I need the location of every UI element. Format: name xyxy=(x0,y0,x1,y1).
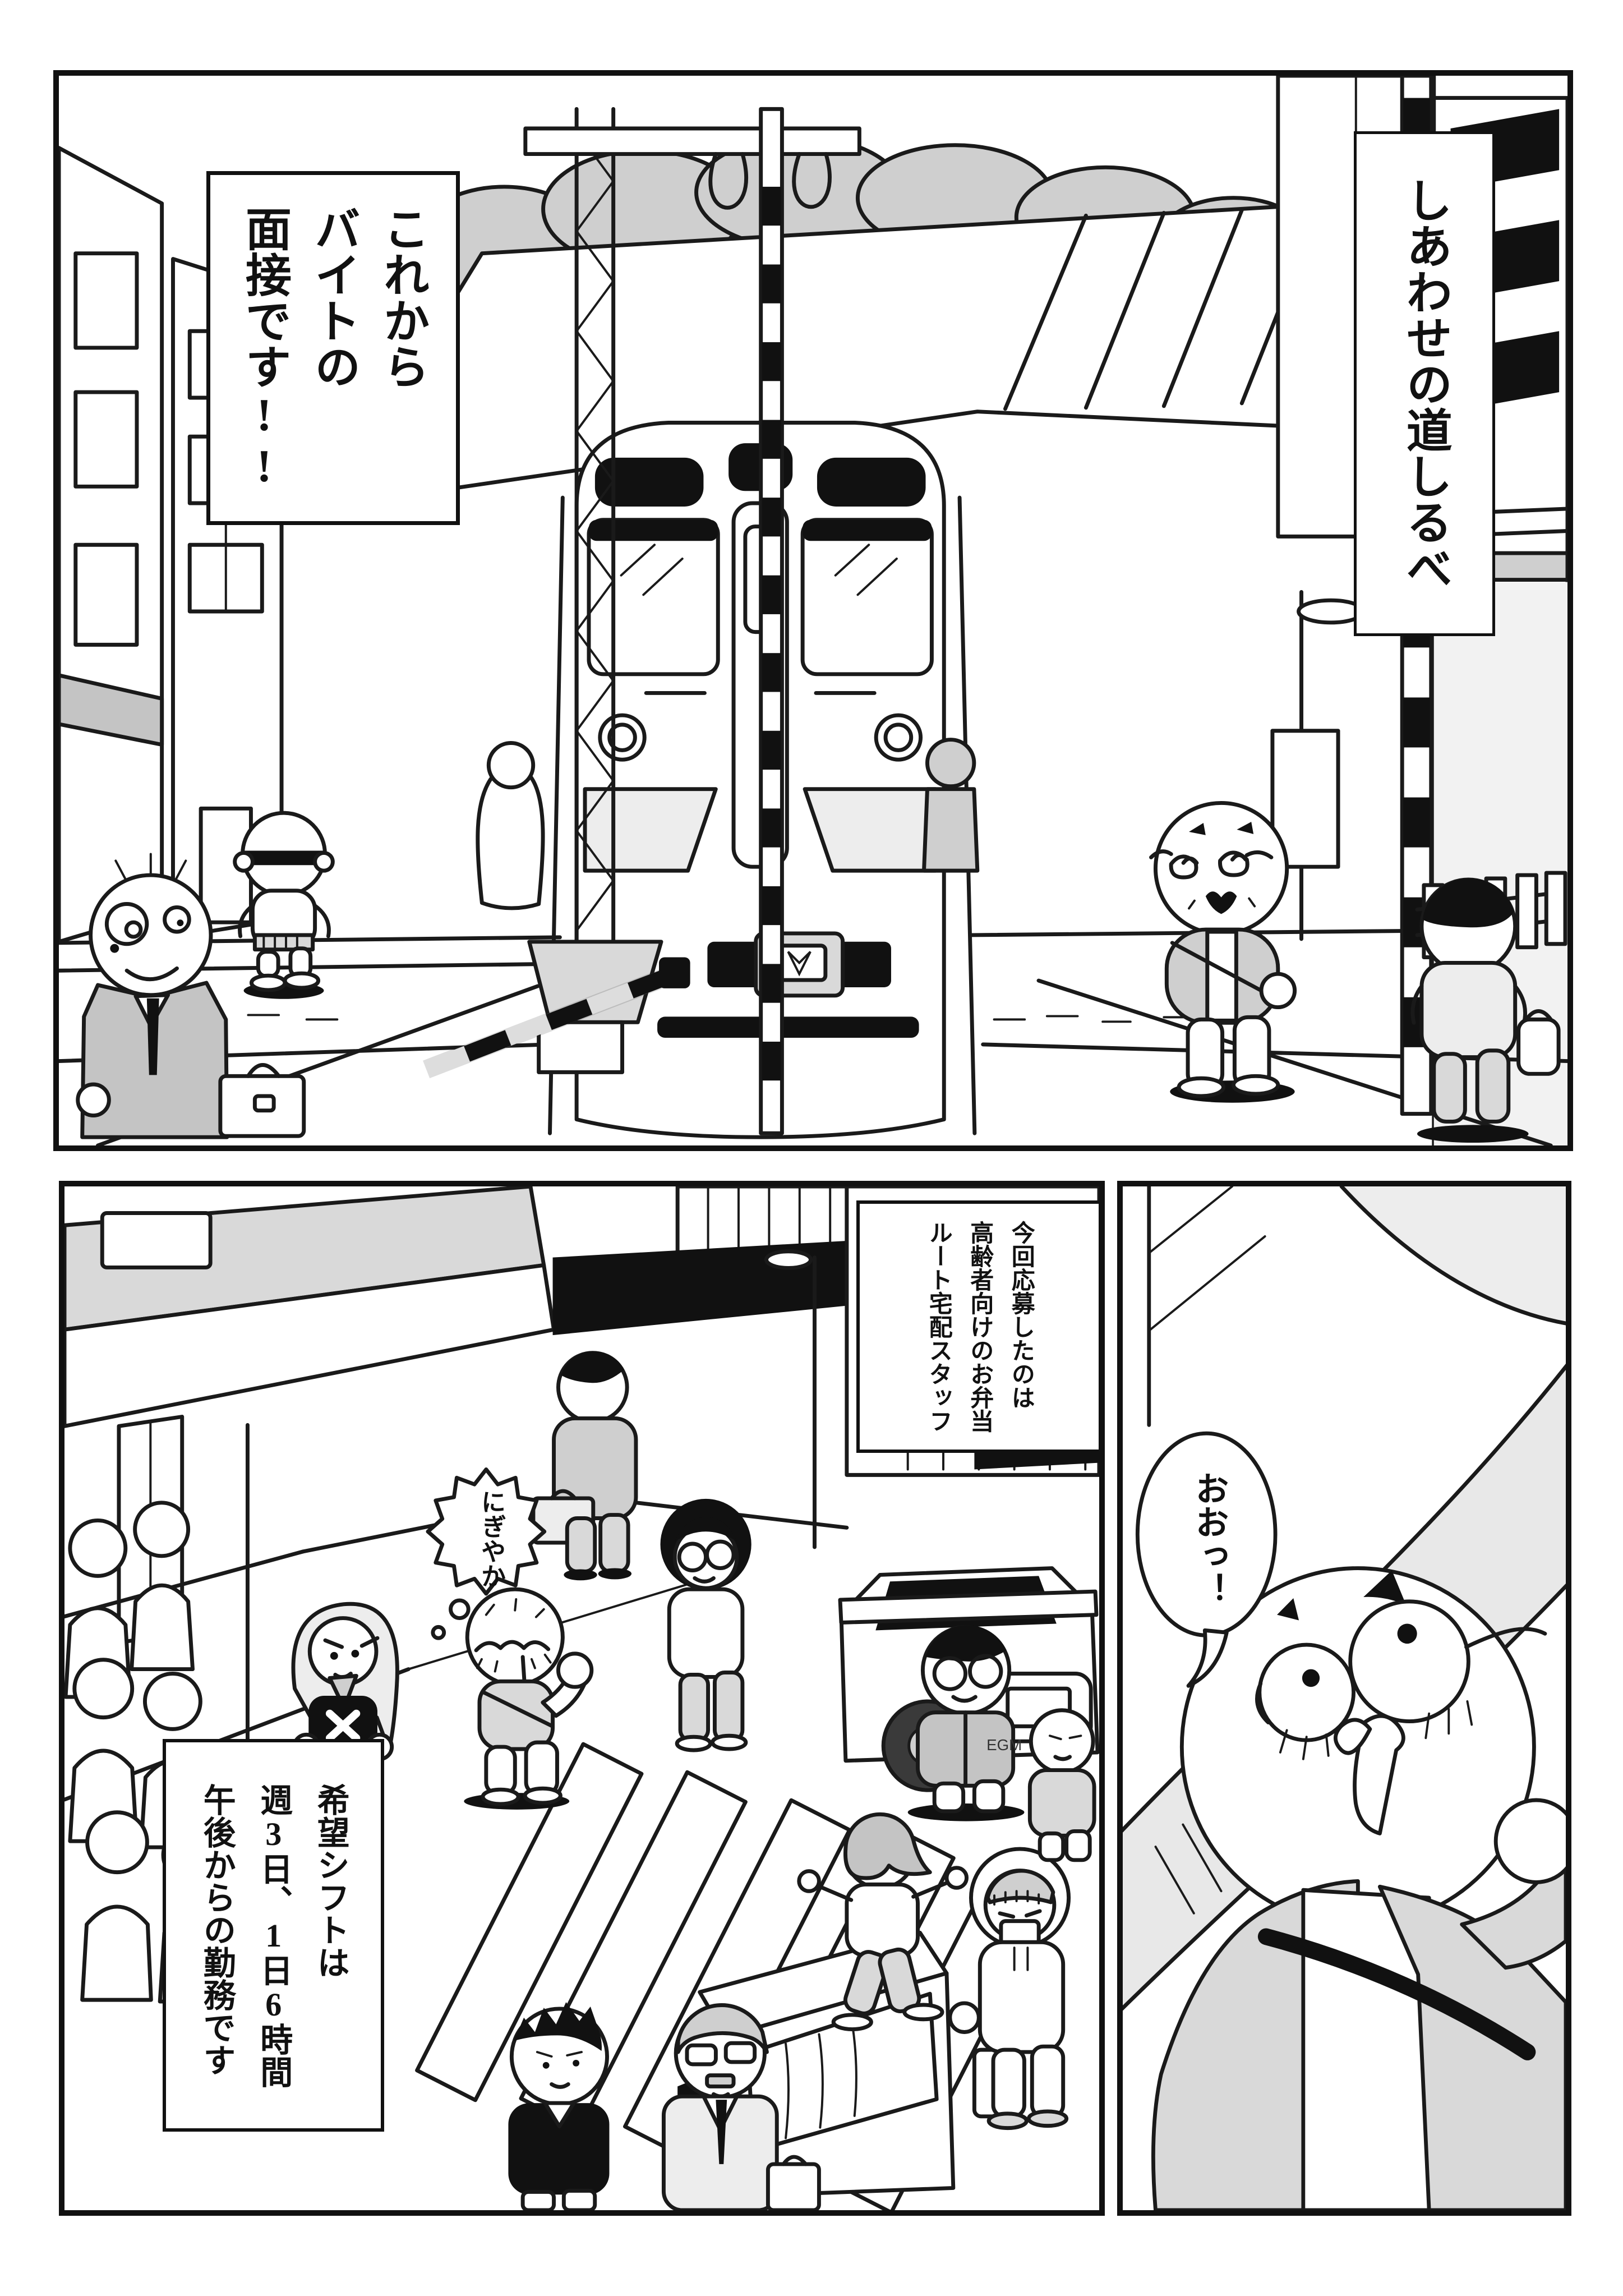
pedestrian-silhouette-white xyxy=(478,743,543,908)
speech-text: おおっ！ xyxy=(1192,1471,1226,1606)
jacket-text: EGM xyxy=(986,1736,1022,1754)
thought-text: にぎやか xyxy=(478,1489,503,1588)
salaryman-back xyxy=(533,1351,636,1581)
caption-job-description-text: 今回応募したのは 高齢者向けのお弁当 ルート宅配スタッフ xyxy=(917,1221,1041,1433)
boy-with-cap xyxy=(235,813,333,999)
speech-bubble-text: おおっ！ xyxy=(1171,1449,1247,1628)
caption-job-description: 今回応募したのは 高齢者向けのお弁当 ルート宅配スタッフ xyxy=(856,1200,1102,1453)
title-text: しあわせの道しるべ xyxy=(1397,177,1452,591)
caption-shift-info-text: 希望シフトは 週3日、1日6時間 午後からの勤務です xyxy=(188,1783,359,2088)
platform-silhouette xyxy=(924,740,978,871)
closeup-scene-art xyxy=(1123,1186,1566,2210)
title-signboard: しあわせの道しるべ xyxy=(1354,131,1495,636)
young-man-sweater xyxy=(508,2002,609,2210)
panel-busy-street: EGM xyxy=(59,1181,1105,2216)
manga-page: これから バイトの 面接です!! しあわせの道しるべ xyxy=(0,0,1623,2296)
caption-shift-info: 希望シフトは 週3日、1日6時間 午後からの勤務です xyxy=(163,1739,384,2132)
narration-balloon-text: これから バイトの 面接です!! xyxy=(230,205,437,491)
panel-railroad-crossing: これから バイトの 面接です!! しあわせの道しるべ xyxy=(53,70,1573,1151)
panel-closeup-elderly-man: おおっ！ xyxy=(1117,1181,1571,2216)
bald-man xyxy=(1030,1710,1094,1860)
thought-bubble-text: にぎやか xyxy=(456,1483,525,1595)
woman-bob-glasses xyxy=(660,1499,751,1750)
narration-balloon: これから バイトの 面接です!! xyxy=(206,171,460,525)
